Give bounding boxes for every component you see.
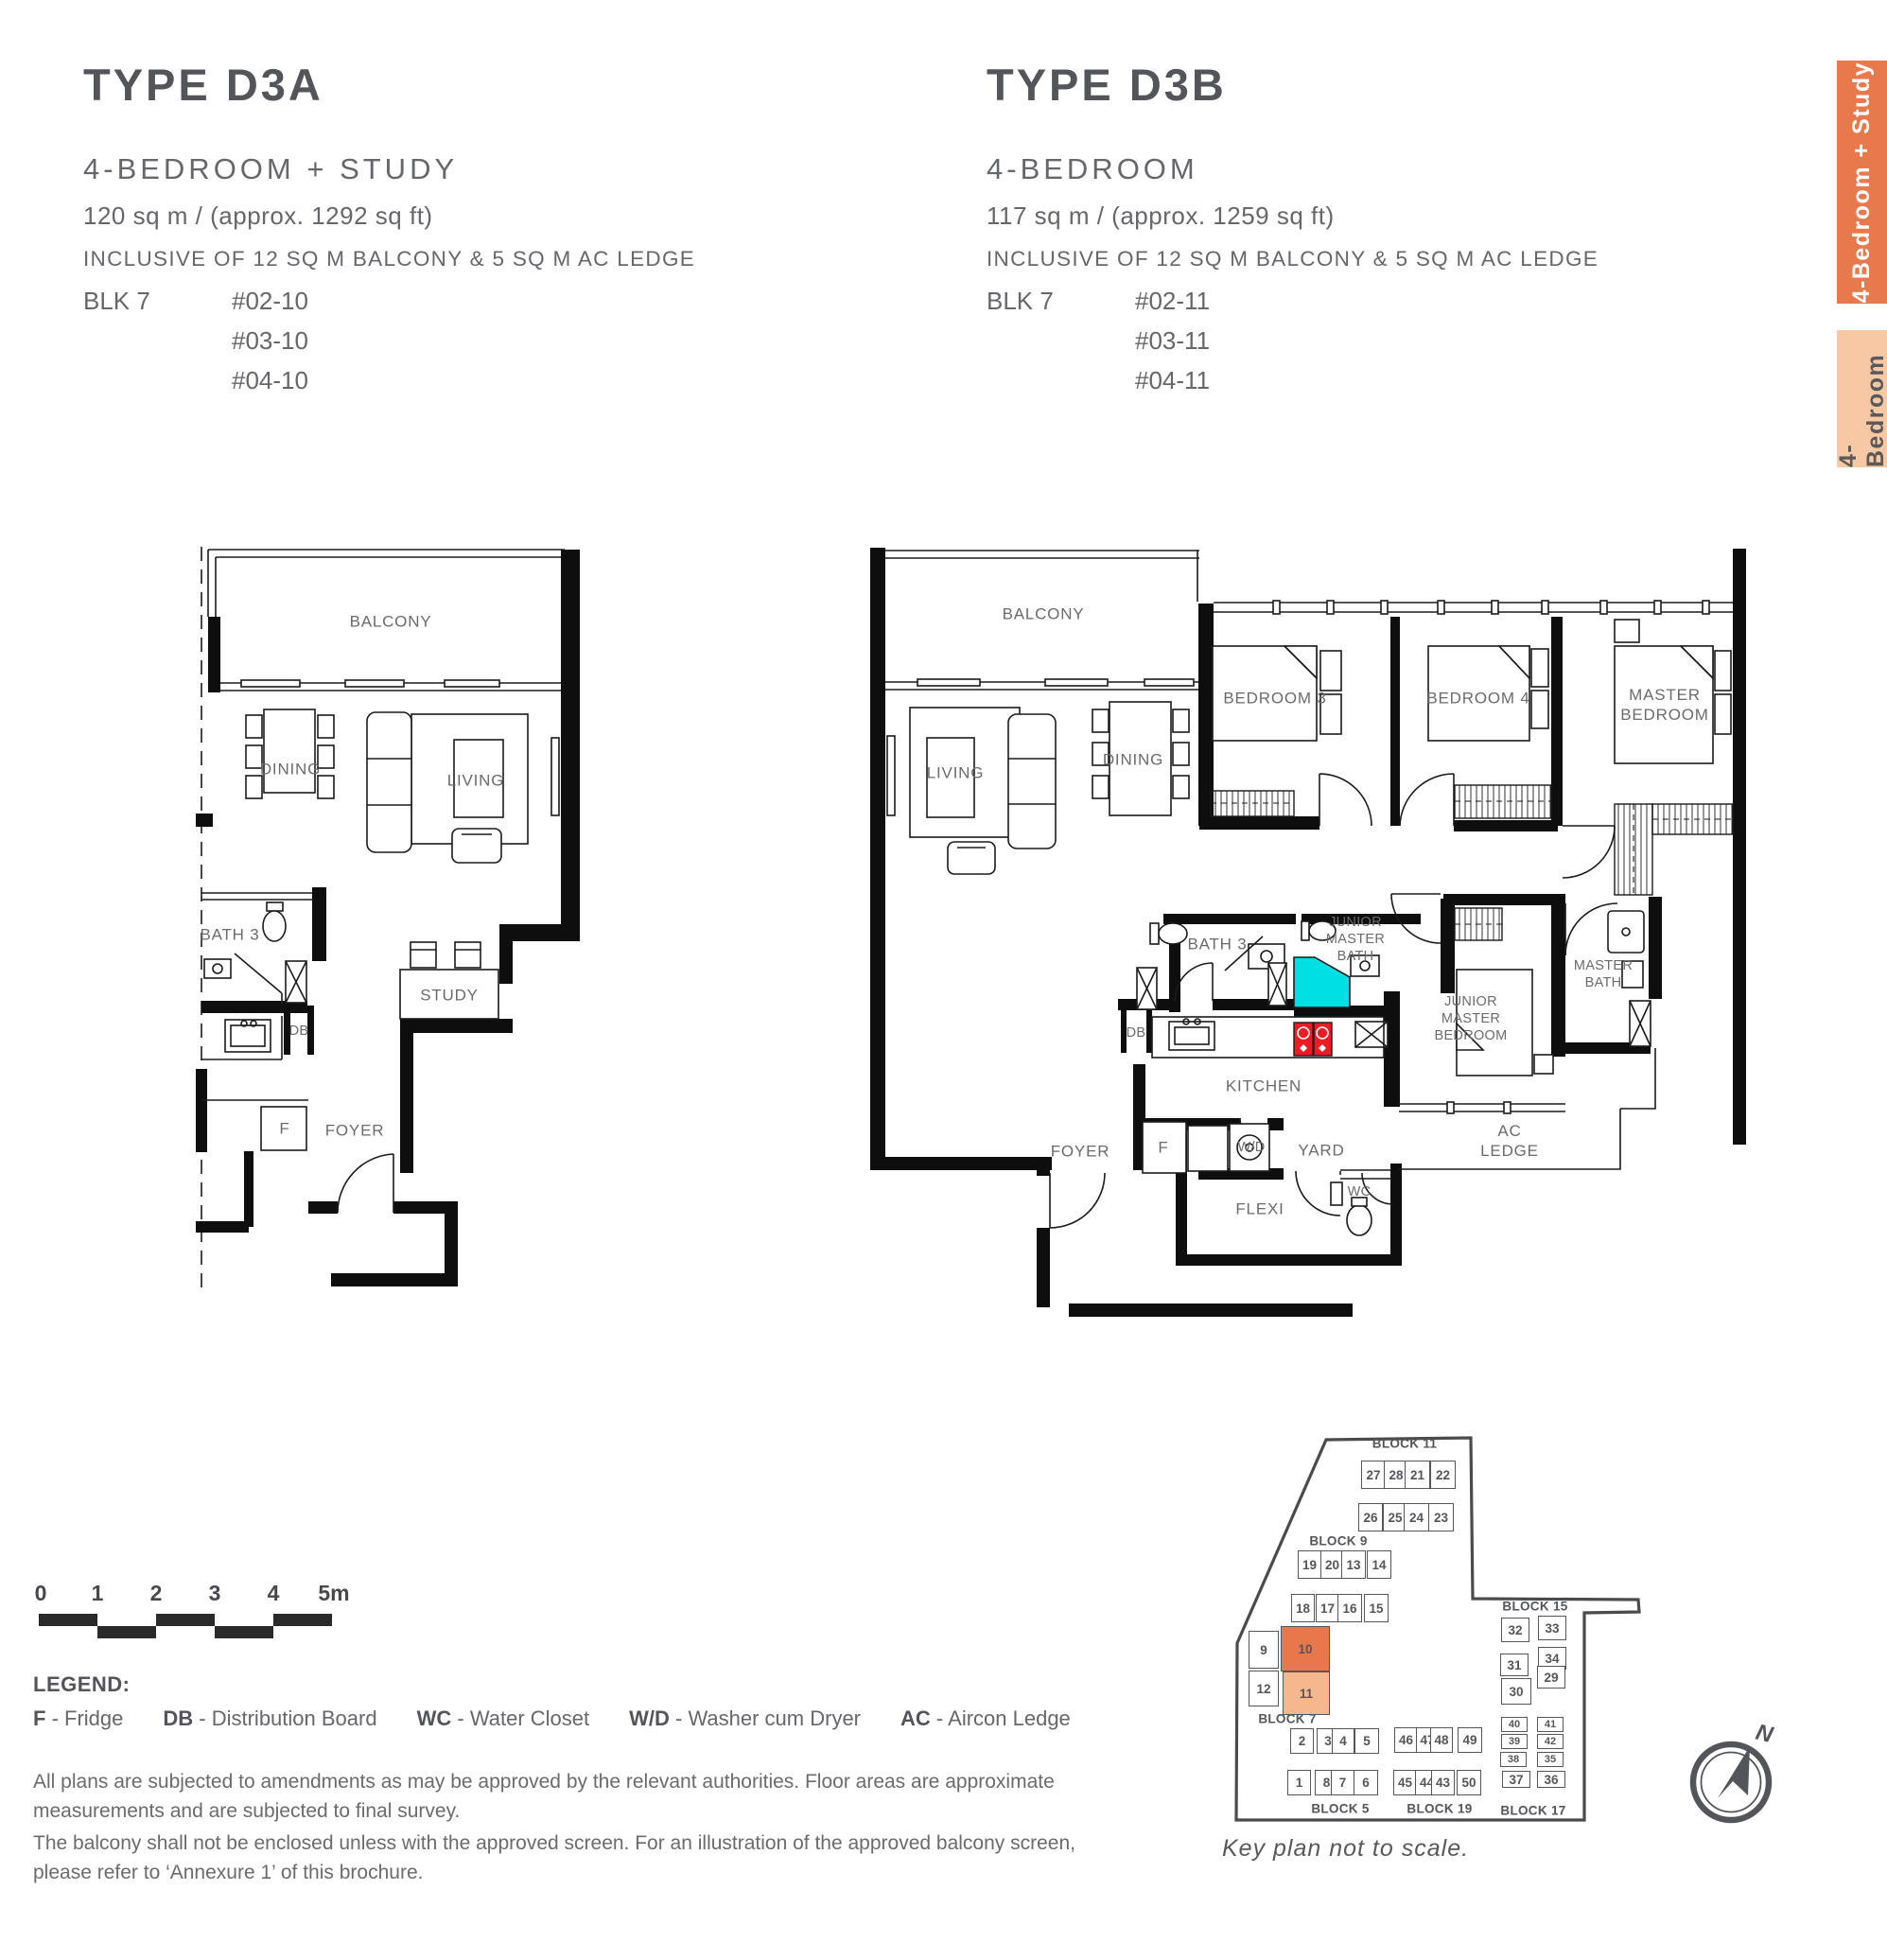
key-plan: N Key plan not to scale. BLOCK 112728212…: [1220, 1430, 1844, 1913]
keyplan-block-label: BLOCK 19: [1407, 1802, 1472, 1816]
keyplan-unit: 14: [1367, 1550, 1391, 1579]
scale-tick: 2: [150, 1581, 163, 1605]
legend-item: W/D - Washer cum Dryer: [629, 1706, 861, 1731]
keyplan-unit: 16: [1337, 1594, 1362, 1622]
room-label-bedroom4: BEDROOM 4: [1426, 688, 1529, 708]
keyplan-unit: 50: [1457, 1770, 1481, 1795]
keyplan-unit: 40: [1501, 1717, 1528, 1732]
brochure-page: TYPE D3A 4-BEDROOM + STUDY 120 sq m / (a…: [0, 0, 1887, 1960]
legend-items: F - Fridge DB - Distribution Board WC - …: [33, 1706, 1110, 1731]
unit-area: 117 sq m / (approx. 1259 sq ft): [987, 201, 1599, 231]
stack-item: #03-10: [232, 326, 308, 366]
room-label-study: STUDY: [420, 985, 479, 1005]
unit-block-row: BLK 7 #02-10 #03-10 #04-10: [83, 287, 695, 406]
keyplan-unit: 32: [1501, 1618, 1529, 1642]
room-label-yard: YARD: [1298, 1140, 1344, 1160]
keyplan-unit: 11: [1283, 1671, 1330, 1715]
keyplan-unit: 31: [1500, 1654, 1529, 1676]
tab-4-bedroom-study[interactable]: 4-Bedroom + Study: [1837, 61, 1887, 304]
scale-tick: 1: [92, 1581, 104, 1605]
keyplan-block-label: BLOCK 17: [1500, 1804, 1565, 1818]
room-label-flexi: FLEXI: [1235, 1199, 1284, 1218]
keyplan-unit: 5: [1354, 1728, 1379, 1754]
room-label-living: LIVING: [927, 762, 985, 782]
legend: LEGEND: F - Fridge DB - Distribution Boa…: [33, 1672, 1110, 1731]
unit-type-title: TYPE D3B: [987, 59, 1599, 111]
room-label-living: LIVING: [447, 770, 505, 790]
unit-header-d3b: TYPE D3B 4-BEDROOM 117 sq m / (approx. 1…: [987, 59, 1599, 406]
disclaimer-line: All plans are subjected to amendments as…: [33, 1767, 1111, 1826]
keyplan-unit: 33: [1538, 1616, 1566, 1640]
keyplan-block-label: BLOCK 5: [1311, 1802, 1369, 1816]
keyplan-unit: 36: [1537, 1771, 1565, 1788]
disclaimer-line: The balcony shall not be enclosed unless…: [33, 1829, 1111, 1887]
floorplan-d3a-drawing: [142, 407, 615, 1324]
room-label-foyer: FOYER: [1051, 1141, 1110, 1161]
keyplan-block-label: BLOCK 15: [1502, 1600, 1567, 1614]
scale-tick: 5m: [318, 1581, 349, 1605]
room-label-ac-ledge: AC LEDGE: [1480, 1121, 1539, 1162]
keyplan-unit: 1: [1287, 1770, 1311, 1795]
tab-label: 4-Bedroom + Study: [1848, 61, 1876, 303]
stack-item: #02-10: [232, 287, 308, 326]
room-label-master-bedroom: MASTER BEDROOM: [1620, 685, 1708, 726]
floorplan-d3b-drawing: [832, 407, 1759, 1324]
stack-list: #02-11 #03-11 #04-11: [1135, 287, 1210, 406]
keyplan-unit: 29: [1537, 1666, 1565, 1689]
disclaimer: All plans are subjected to amendments as…: [33, 1767, 1111, 1890]
room-label-kitchen: KITCHEN: [1226, 1076, 1302, 1095]
keyplan-unit: 37: [1502, 1771, 1530, 1788]
unit-config: 4-BEDROOM + STUDY: [83, 152, 695, 186]
room-label-wc: WC: [1348, 1183, 1372, 1200]
legend-item: AC - Aircon Ledge: [900, 1706, 1071, 1731]
unit-type-title: TYPE D3A: [83, 59, 695, 111]
unit-config: 4-BEDROOM: [987, 152, 1599, 186]
keyplan-unit: 38: [1500, 1752, 1527, 1767]
unit-area: 120 sq m / (approx. 1292 sq ft): [83, 201, 695, 231]
tab-label: 4-Bedroom: [1835, 330, 1887, 467]
compass-north-label: N: [1754, 1720, 1776, 1749]
floorplan-d3b: BALCONY LIVING DINING BEDROOM 3 BEDROOM …: [832, 407, 1759, 1324]
keyplan-unit: 22: [1430, 1461, 1456, 1489]
room-label-balcony: BALCONY: [350, 611, 432, 631]
unit-block-row: BLK 7 #02-11 #03-11 #04-11: [987, 287, 1599, 406]
keyplan-unit: 19: [1298, 1550, 1321, 1579]
keyplan-unit: 21: [1405, 1461, 1430, 1489]
keyplan-unit: 12: [1249, 1671, 1279, 1706]
scale-tick: 3: [209, 1581, 221, 1605]
keyplan-unit: 17: [1316, 1594, 1339, 1622]
keyplan-unit: 13: [1341, 1550, 1366, 1579]
keyplan-unit: 43: [1431, 1770, 1455, 1795]
room-label-fridge: F: [279, 1118, 289, 1138]
keyplan-unit: 42: [1537, 1734, 1564, 1749]
compass-icon: N: [1693, 1720, 1776, 1820]
room-label-bath3: BATH 3: [200, 924, 259, 944]
keyplan-block-label: BLOCK 11: [1372, 1437, 1437, 1451]
scale-tick: 0: [35, 1581, 47, 1605]
legend-item: WC - Water Closet: [417, 1706, 590, 1731]
stack-item: #04-11: [1135, 366, 1210, 406]
keyplan-unit: 18: [1291, 1594, 1315, 1622]
scale-bar: 0 1 2 3 4 5m: [33, 1580, 355, 1655]
legend-heading: LEGEND:: [33, 1672, 1110, 1697]
room-label-junior-master-bedroom: JUNIOR MASTER BEDROOM: [1434, 993, 1507, 1044]
unit-header-d3a: TYPE D3A 4-BEDROOM + STUDY 120 sq m / (a…: [83, 59, 695, 406]
stack-item: #04-10: [232, 366, 308, 406]
unit-inclusive-note: INCLUSIVE OF 12 SQ M BALCONY & 5 SQ M AC…: [987, 247, 1599, 271]
keyplan-unit: 4: [1332, 1728, 1354, 1754]
keyplan-unit: 46: [1394, 1727, 1418, 1753]
stack-item: #02-11: [1135, 287, 1210, 326]
keyplan-unit: 41: [1537, 1717, 1564, 1732]
keyplan-unit: 6: [1354, 1770, 1378, 1795]
stack-item: #03-11: [1135, 326, 1210, 366]
keyplan-unit: 7: [1331, 1770, 1354, 1795]
room-label-bath3: BATH 3: [1187, 934, 1247, 954]
room-label-db: DB: [289, 1023, 309, 1040]
keyplan-block-label: BLOCK 9: [1309, 1534, 1367, 1549]
block-label: BLK 7: [83, 287, 232, 406]
keyplan-unit: 35: [1537, 1752, 1564, 1767]
keyplan-unit: 27: [1361, 1461, 1386, 1489]
floorplan-d3a: BALCONY DINING LIVING BATH 3 STUDY DB F …: [142, 407, 615, 1324]
keyplan-unit: 45: [1393, 1770, 1417, 1795]
room-label-master-bath: MASTER BATH: [1574, 957, 1633, 991]
unit-inclusive-note: INCLUSIVE OF 12 SQ M BALCONY & 5 SQ M AC…: [83, 247, 695, 271]
room-label-db: DB: [1127, 1024, 1146, 1041]
key-plan-note: Key plan not to scale.: [1222, 1835, 1469, 1863]
room-label-wd: W/D: [1237, 1139, 1265, 1156]
legend-item: F - Fridge: [33, 1706, 123, 1731]
block-label: BLK 7: [987, 287, 1135, 406]
room-label-dining: DINING: [1103, 749, 1163, 769]
room-label-bedroom3: BEDROOM 3: [1223, 688, 1326, 708]
keyplan-unit: 24: [1404, 1503, 1429, 1531]
room-label-junior-master-bath: JUNIOR MASTER BATH: [1326, 914, 1385, 965]
keyplan-unit: 9: [1249, 1631, 1279, 1669]
keyplan-unit: 23: [1428, 1503, 1454, 1531]
keyplan-unit: 26: [1358, 1503, 1383, 1531]
legend-item: DB - Distribution Board: [163, 1706, 376, 1731]
scale-tick: 4: [268, 1581, 280, 1605]
room-label-balcony: BALCONY: [1003, 604, 1085, 623]
keyplan-unit: 49: [1458, 1727, 1482, 1753]
room-label-fridge: F: [1158, 1137, 1168, 1157]
keyplan-unit: 2: [1290, 1728, 1314, 1754]
room-label-foyer: FOYER: [325, 1120, 385, 1140]
keyplan-unit: 10: [1281, 1626, 1330, 1671]
tab-4-bedroom[interactable]: 4-Bedroom: [1837, 330, 1887, 467]
stack-list: #02-10 #03-10 #04-10: [232, 287, 308, 406]
room-label-dining: DINING: [260, 759, 321, 779]
keyplan-unit: 30: [1501, 1678, 1531, 1705]
keyplan-unit: 15: [1364, 1594, 1389, 1622]
keyplan-unit: 48: [1430, 1727, 1453, 1753]
keyplan-unit: 39: [1501, 1734, 1528, 1749]
